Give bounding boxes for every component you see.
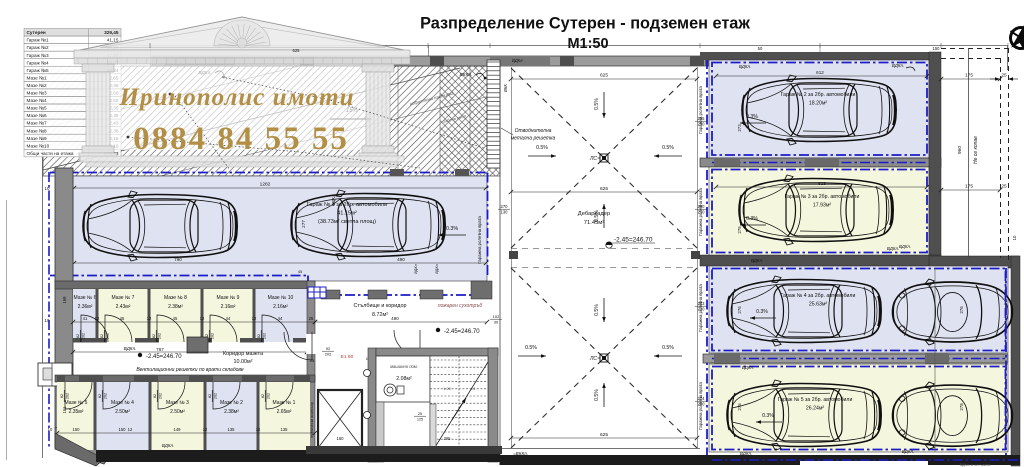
svg-text:2.43м²: 2.43м²	[116, 304, 131, 310]
svg-text:0.3%: 0.3%	[756, 309, 768, 315]
svg-text:25: 25	[310, 358, 315, 363]
svg-text:1282: 1282	[260, 182, 271, 188]
svg-text:275: 275	[737, 226, 742, 234]
svg-text:2.38м²: 2.38м²	[224, 409, 239, 415]
svg-text:202: 202	[103, 393, 107, 399]
svg-text:135: 135	[228, 427, 236, 432]
svg-text:ВКК: ВКК	[503, 84, 508, 92]
svg-text:82: 82	[208, 394, 212, 398]
svg-text:82: 82	[152, 334, 156, 338]
svg-text:Мазе №4: Мазе №4	[27, 98, 48, 103]
svg-text:50: 50	[758, 46, 763, 51]
svg-text:613: 613	[818, 181, 826, 186]
svg-text:44: 44	[226, 316, 231, 321]
svg-text:Мазе № 8: Мазе № 8	[164, 295, 187, 301]
svg-text:2.38м²: 2.38м²	[168, 304, 183, 310]
svg-text:12: 12	[252, 316, 257, 321]
svg-text:Дебаркадер: Дебаркадер	[578, 211, 610, 217]
svg-text:612: 612	[816, 70, 824, 75]
svg-text:125: 125	[417, 417, 423, 421]
svg-text:255: 255	[698, 116, 706, 121]
svg-text:М1:50: М1:50	[567, 36, 608, 52]
svg-text:Стълбище и коридор: Стълбище и коридор	[354, 303, 407, 309]
svg-text:2.35м²: 2.35м²	[69, 409, 84, 415]
svg-text:18.20м²: 18.20м²	[809, 101, 828, 107]
svg-text:0.5%: 0.5%	[594, 389, 600, 401]
svg-text:278: 278	[959, 403, 964, 411]
svg-text:Мазе № 2: Мазе № 2	[220, 400, 243, 406]
svg-text:Мазе № 10: Мазе № 10	[268, 295, 294, 301]
svg-text:-2.45=246.70: -2.45=246.70	[146, 354, 182, 360]
svg-text:машинно пом.: машинно пом.	[390, 364, 418, 369]
svg-text:Общи части на етажа: Общи части на етажа	[27, 151, 74, 156]
svg-text:Мазе № 1: Мазе № 1	[273, 400, 296, 406]
svg-text:Разпределение Сутерен - подзем: Разпределение Сутерен - подземен етаж	[420, 15, 750, 33]
svg-text:273: 273	[737, 124, 742, 132]
svg-text:30: 30	[494, 320, 499, 325]
svg-text:0.5%: 0.5%	[662, 145, 674, 151]
svg-text:276: 276	[959, 306, 964, 314]
svg-text:2.16м²: 2.16м²	[221, 304, 236, 310]
svg-text:0.5%: 0.5%	[594, 98, 600, 110]
svg-text:пътнически асансьор: пътнически асансьор	[310, 402, 314, 438]
svg-text:82: 82	[100, 334, 104, 338]
svg-text:12: 12	[128, 427, 133, 432]
svg-text:202: 202	[81, 333, 85, 339]
svg-text:230: 230	[698, 210, 706, 215]
svg-text:44: 44	[278, 316, 283, 321]
svg-text:202: 202	[325, 352, 332, 357]
svg-text:960: 960	[957, 146, 963, 154]
svg-text:395: 395	[444, 436, 452, 441]
svg-text:ЛС: ЛС	[589, 356, 597, 362]
svg-text:ВДКл: ВДКл	[414, 263, 418, 273]
svg-text:202: 202	[213, 393, 217, 399]
svg-text:161: 161	[62, 406, 67, 414]
svg-text:ЛС: ЛС	[589, 156, 597, 162]
svg-text:ВДКл: ВДКл	[331, 194, 336, 205]
svg-text:ВДКл: ВДКл	[435, 263, 439, 273]
svg-text:ВДКл.: ВДКл.	[162, 443, 174, 448]
svg-text:625: 625	[600, 73, 608, 79]
svg-text:10: 10	[45, 186, 50, 191]
svg-text:Мазе №8: Мазе №8	[27, 128, 48, 133]
svg-text:202: 202	[157, 333, 161, 339]
svg-text:10: 10	[48, 427, 53, 432]
svg-text:2.16м²: 2.16м²	[273, 304, 288, 310]
svg-text:202: 202	[105, 333, 109, 339]
svg-text:Не се копае: Не се копае	[973, 136, 979, 164]
svg-text:92: 92	[326, 346, 331, 351]
svg-text:Мазе № 9: Мазе № 9	[217, 295, 240, 301]
svg-text:263: 263	[698, 301, 706, 306]
svg-text:45: 45	[173, 316, 178, 321]
svg-text:25.63м²: 25.63м²	[809, 302, 828, 308]
svg-text:10.00м²: 10.00м²	[234, 359, 253, 365]
svg-text:Гараж № 3 за 2бр. автомобили: Гараж № 3 за 2бр. автомобили	[785, 194, 860, 200]
svg-text:Мазе №1: Мазе №1	[27, 75, 48, 80]
svg-text:230: 230	[698, 402, 706, 407]
svg-text:41: 41	[83, 316, 88, 321]
svg-text:-2.45=246.70: -2.45=246.70	[444, 329, 480, 335]
svg-text:Мазе №2: Мазе №2	[27, 83, 48, 88]
svg-text:82: 82	[76, 334, 80, 338]
svg-text:274: 274	[698, 396, 706, 401]
svg-text:ВККл.: ВККл.	[460, 72, 473, 78]
svg-text:Иринополис имоти: Иринополис имоти	[119, 84, 355, 111]
svg-text:767: 767	[156, 347, 164, 352]
svg-text:45: 45	[298, 269, 303, 274]
svg-text:82: 82	[261, 394, 265, 398]
svg-text:277: 277	[301, 220, 306, 228]
svg-text:0.5%: 0.5%	[662, 345, 674, 351]
svg-text:Мазе №9: Мазе №9	[27, 136, 48, 141]
svg-text:ВДКл.: ВДКл.	[751, 258, 763, 263]
svg-text:175: 175	[965, 184, 973, 190]
svg-text:Гараж № 4 за 2бр. автомобили: Гараж № 4 за 2бр. автомобили	[781, 293, 856, 299]
svg-text:0.3%: 0.3%	[762, 413, 774, 419]
svg-text:275: 275	[737, 403, 742, 411]
svg-text:Е1 90: Е1 90	[341, 354, 354, 360]
svg-text:102: 102	[493, 314, 500, 319]
svg-text:24: 24	[471, 387, 475, 391]
svg-text:25: 25	[1001, 73, 1007, 79]
svg-text:Гараж № 2 за 2бр. автомобили: Гараж № 2 за 2бр. автомобили	[781, 92, 856, 98]
svg-text:202: 202	[65, 393, 69, 399]
svg-text:169: 169	[62, 296, 67, 304]
svg-text:150: 150	[933, 46, 941, 51]
svg-text:Мазе №10: Мазе №10	[27, 143, 50, 148]
svg-text:202: 202	[158, 393, 162, 399]
svg-text:12: 12	[256, 427, 261, 432]
svg-text:0884 84 55 55: 0884 84 55 55	[133, 121, 349, 157]
svg-text:ВДКл.: ВДКл.	[892, 63, 904, 68]
svg-text:0.5%: 0.5%	[536, 145, 548, 151]
svg-text:Гараж №4: Гараж №4	[27, 60, 50, 65]
svg-text:ВДКл.: ВДКл.	[902, 449, 914, 454]
svg-text:0.3%: 0.3%	[746, 216, 758, 222]
svg-text:25: 25	[1001, 184, 1007, 190]
svg-text:130: 130	[501, 210, 509, 215]
svg-text:230: 230	[698, 307, 706, 312]
svg-text:Гаражна ролетна врата: Гаражна ролетна врата	[477, 216, 482, 264]
svg-text:45: 45	[120, 316, 125, 321]
svg-text:82: 82	[257, 334, 261, 338]
svg-text:329,45: 329,45	[104, 30, 119, 35]
svg-text:280: 280	[698, 204, 706, 209]
svg-text:2.50м²: 2.50м²	[115, 409, 130, 415]
svg-text:2.08м²: 2.08м²	[396, 376, 412, 382]
svg-text:2.65м²: 2.65м²	[277, 409, 292, 415]
svg-text:Мазе № 7: Мазе № 7	[112, 295, 135, 301]
svg-text:12: 12	[200, 316, 205, 321]
svg-text:82: 82	[60, 394, 64, 398]
svg-text:ВДКл.: ВДКл.	[742, 365, 754, 370]
svg-text:150: 150	[119, 427, 127, 432]
svg-text:71.45м²: 71.45м²	[584, 220, 604, 226]
svg-text:1.20: 1.20	[443, 387, 450, 391]
svg-text:26.24м²: 26.24м²	[806, 406, 825, 412]
svg-text:Отводнителна: Отводнителна	[515, 128, 552, 134]
svg-text:Гараж №2: Гараж №2	[27, 45, 50, 50]
svg-text:Гараж №5: Гараж №5	[27, 68, 50, 73]
svg-text:Сутерен: Сутерен	[27, 30, 46, 35]
svg-text:276: 276	[737, 306, 742, 314]
svg-text:82: 82	[153, 394, 157, 398]
svg-text:10: 10	[1012, 235, 1017, 240]
svg-text:625: 625	[600, 432, 608, 438]
svg-text:0.3%: 0.3%	[446, 226, 458, 232]
svg-text:135: 135	[281, 427, 289, 432]
svg-text:Мазе №5: Мазе №5	[27, 106, 48, 111]
svg-text:12: 12	[95, 316, 100, 321]
svg-text:175: 175	[965, 73, 973, 79]
svg-text:Мазе №6: Мазе №6	[27, 113, 48, 118]
svg-text:12: 12	[147, 316, 152, 321]
svg-text:ВДКл.: ВДКл.	[887, 246, 899, 251]
svg-text:ВДКл: ВДКл	[512, 58, 523, 63]
svg-text:490: 490	[397, 257, 405, 262]
svg-text:490: 490	[391, 316, 399, 321]
svg-text:2.50м²: 2.50м²	[170, 409, 185, 415]
svg-text:Мазе № 6: Мазе № 6	[74, 295, 97, 301]
svg-text:-2.45=246.70: -2.45=246.70	[614, 237, 653, 244]
svg-text:82: 82	[98, 394, 102, 398]
svg-text:41.15м²: 41.15м²	[337, 211, 357, 217]
svg-text:202: 202	[266, 393, 270, 399]
svg-text:(38.73м² светла площ): (38.73м² светла площ)	[318, 219, 376, 225]
svg-text:Мазе №7: Мазе №7	[27, 121, 48, 126]
svg-text:790: 790	[174, 257, 182, 262]
svg-text:17.93м²: 17.93м²	[813, 203, 832, 209]
svg-text:Мазе №3: Мазе №3	[27, 91, 48, 96]
svg-text:25: 25	[418, 412, 422, 416]
svg-text:ВДКл.: ВДКл.	[124, 346, 137, 351]
svg-text:Гараж №1: Гараж №1	[27, 38, 50, 43]
svg-text:8.72м²: 8.72м²	[372, 312, 388, 318]
svg-text:0.5%: 0.5%	[594, 304, 600, 316]
svg-text:Гараж № 1 за 2бр. автомобили: Гараж № 1 за 2бр. автомобили	[307, 202, 388, 208]
svg-text:41,15: 41,15	[107, 38, 119, 43]
svg-text:149: 149	[174, 427, 182, 432]
svg-text:ВДКл.: ВДКл.	[899, 244, 911, 249]
svg-text:ВДКл.: ВДКл.	[739, 64, 751, 69]
svg-text:625: 625	[293, 48, 301, 53]
svg-text:Вентилационни решетки по врати: Вентилационни решетки по врати складове	[136, 367, 244, 373]
svg-text:Гараж №3: Гараж №3	[27, 53, 50, 58]
svg-text:12: 12	[203, 427, 208, 432]
svg-text:25: 25	[309, 316, 314, 321]
svg-text:2.36м²: 2.36м²	[78, 304, 93, 310]
svg-text:0.5%: 0.5%	[525, 345, 537, 351]
svg-text:пожарен сухотръб: пожарен сухотръб	[438, 303, 483, 309]
svg-text:270: 270	[501, 204, 509, 209]
svg-text:202: 202	[210, 333, 214, 339]
svg-text:160: 160	[337, 436, 345, 441]
svg-text:625: 625	[600, 186, 608, 192]
svg-text:ВДКл. и сл. части: ВДКл. и сл. части	[960, 463, 991, 467]
svg-text:10: 10	[45, 318, 50, 323]
svg-text:150: 150	[73, 427, 81, 432]
svg-text:202: 202	[262, 333, 266, 339]
svg-text:метална решетка: метална решетка	[511, 136, 556, 142]
svg-text:230: 230	[698, 122, 706, 127]
svg-text:Гараж № 5 за 2бр. автомобили: Гараж № 5 за 2бр. автомобили	[778, 397, 853, 403]
svg-text:0.3%: 0.3%	[746, 114, 758, 120]
